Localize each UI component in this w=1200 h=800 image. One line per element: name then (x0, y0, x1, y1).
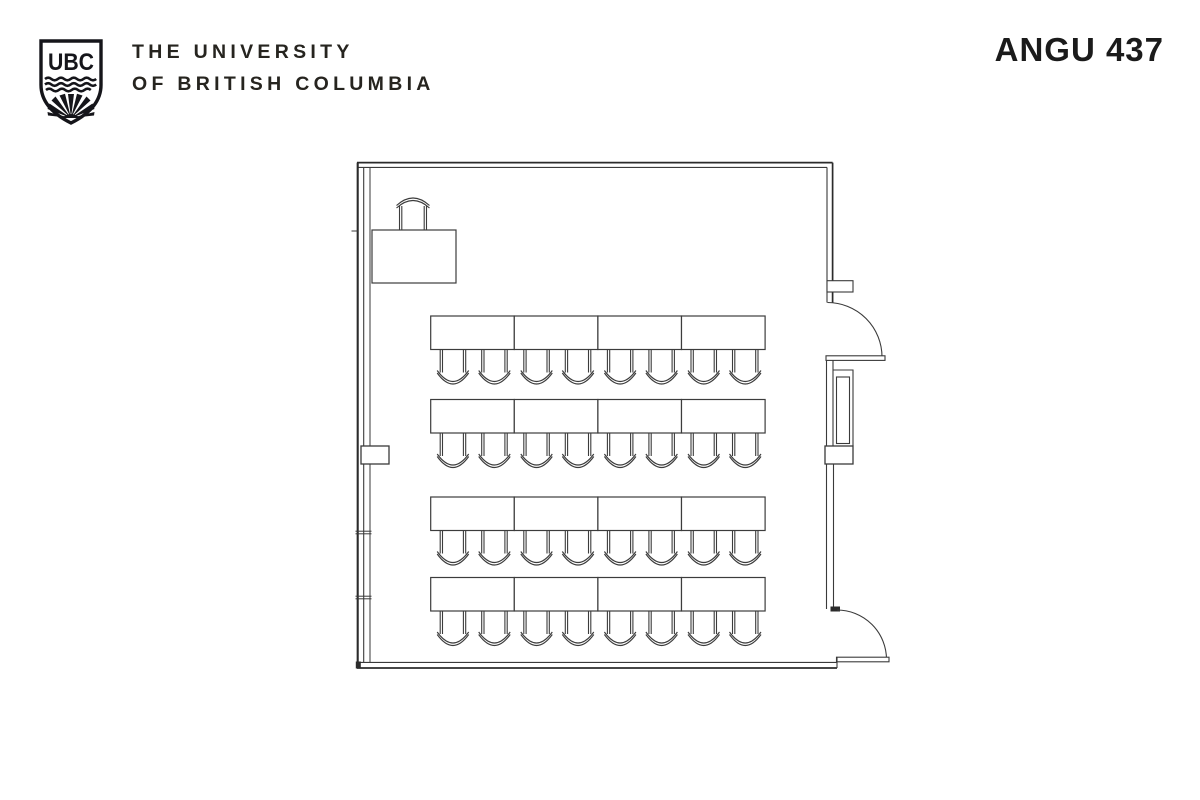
chair (479, 433, 511, 468)
wall-jog-tab (827, 281, 853, 292)
chair-back (479, 552, 511, 566)
chair (479, 531, 511, 566)
chair-back (437, 371, 469, 385)
door-lower-hinge-block (831, 607, 841, 612)
chair (521, 611, 553, 646)
chair-seat (733, 350, 759, 373)
chair (562, 531, 594, 566)
chair (562, 611, 594, 646)
door-lower-swing-arc (837, 610, 887, 660)
chair-back (730, 632, 762, 646)
chair (437, 611, 469, 646)
chair (688, 433, 720, 468)
table (431, 578, 515, 612)
table (682, 578, 766, 612)
chair-seat (524, 433, 550, 456)
door-upper-swing-arc (828, 303, 883, 358)
chair (562, 433, 594, 468)
chair (646, 611, 678, 646)
chair (562, 350, 594, 385)
presenter-chair (397, 198, 430, 230)
row-tables (431, 497, 765, 531)
pilaster-left (361, 446, 389, 464)
chair-seat (524, 531, 550, 554)
chair-seat (733, 531, 759, 554)
pilaster-right (825, 446, 853, 464)
table-row-1 (431, 316, 765, 384)
table (598, 578, 682, 612)
chair-back (604, 454, 636, 468)
chair-back (604, 632, 636, 646)
chair-seat (691, 611, 717, 634)
table (598, 497, 682, 531)
chair (688, 611, 720, 646)
table (514, 316, 598, 350)
chair (688, 531, 720, 566)
table (431, 316, 515, 350)
chair (688, 350, 720, 385)
door-lower-leaf (837, 657, 890, 662)
table (514, 578, 598, 612)
chair (479, 611, 511, 646)
chair-back (521, 552, 553, 566)
row-chairs (437, 531, 761, 566)
chair-back (562, 552, 594, 566)
wall-niche-panel (837, 377, 850, 444)
chair-back (688, 632, 720, 646)
chair-seat (524, 350, 550, 373)
chair-back (521, 454, 553, 468)
chair-back (646, 552, 678, 566)
chair (604, 611, 636, 646)
chair-seat (524, 611, 550, 634)
chair-back (437, 454, 469, 468)
chair (437, 531, 469, 566)
chair (730, 350, 762, 385)
chair-seat (607, 433, 633, 456)
row-chairs (437, 350, 761, 385)
table-row-4 (431, 578, 765, 646)
chair-seat (733, 433, 759, 456)
chair-back (730, 371, 762, 385)
chair-seat (565, 531, 591, 554)
chair-seat (733, 611, 759, 634)
chair-seat (649, 531, 675, 554)
chair (604, 433, 636, 468)
chair-back (646, 371, 678, 385)
chair-back (479, 371, 511, 385)
chair-back (604, 552, 636, 566)
table (682, 400, 766, 434)
table (682, 497, 766, 531)
podium-area (372, 198, 456, 283)
table (514, 400, 598, 434)
chair-back (562, 454, 594, 468)
chair-seat (649, 350, 675, 373)
chair (604, 531, 636, 566)
chair-seat (565, 433, 591, 456)
chair-back (521, 632, 553, 646)
row-tables (431, 316, 765, 350)
floor-plan-canvas (0, 0, 1200, 800)
row-tables (431, 400, 765, 434)
chair-seat (649, 611, 675, 634)
chair (437, 350, 469, 385)
chair-back (688, 371, 720, 385)
door-upper-leaf (826, 356, 885, 361)
chair-seat (607, 611, 633, 634)
chair (646, 531, 678, 566)
chair-seat (440, 611, 466, 634)
chair (521, 531, 553, 566)
chair-seat (440, 433, 466, 456)
chair-seat (649, 433, 675, 456)
chair-back (479, 632, 511, 646)
table-row-3 (431, 497, 765, 565)
chair (730, 531, 762, 566)
chair-seat (607, 531, 633, 554)
chair-back (646, 632, 678, 646)
chair (604, 350, 636, 385)
row-chairs (437, 433, 761, 468)
chair-back (688, 552, 720, 566)
chair-back (437, 552, 469, 566)
chair (730, 611, 762, 646)
chair (521, 433, 553, 468)
row-chairs (437, 611, 761, 646)
chair-seat (565, 611, 591, 634)
chair-back (437, 632, 469, 646)
chair (646, 433, 678, 468)
chair-seat (482, 531, 508, 554)
chair-seat (691, 433, 717, 456)
chair (479, 350, 511, 385)
table (431, 497, 515, 531)
chair-seat (691, 531, 717, 554)
table (514, 497, 598, 531)
chair (730, 433, 762, 468)
chair-back (730, 454, 762, 468)
chair-seat (440, 531, 466, 554)
chair-back (562, 371, 594, 385)
chair-back (521, 371, 553, 385)
chair-back (646, 454, 678, 468)
podium-desk (372, 230, 456, 283)
chair-back (479, 454, 511, 468)
chair (646, 350, 678, 385)
table (598, 400, 682, 434)
table (598, 316, 682, 350)
chair-seat (565, 350, 591, 373)
furniture-layer (372, 198, 765, 646)
chair (437, 433, 469, 468)
table-row-2 (431, 400, 765, 468)
chair-seat (607, 350, 633, 373)
chair-seat (482, 611, 508, 634)
chair-seat (482, 350, 508, 373)
chair-back (604, 371, 636, 385)
chair-seat (440, 350, 466, 373)
chair-seat (400, 206, 427, 230)
chair-seat (691, 350, 717, 373)
wall-bottom-left-step (356, 662, 361, 669)
chair-back (562, 632, 594, 646)
row-tables (431, 578, 765, 612)
chair-back (730, 552, 762, 566)
wall-left-mullions (352, 231, 372, 599)
chair (521, 350, 553, 385)
table (431, 400, 515, 434)
chair-seat (482, 433, 508, 456)
table (682, 316, 766, 350)
chair-back (688, 454, 720, 468)
